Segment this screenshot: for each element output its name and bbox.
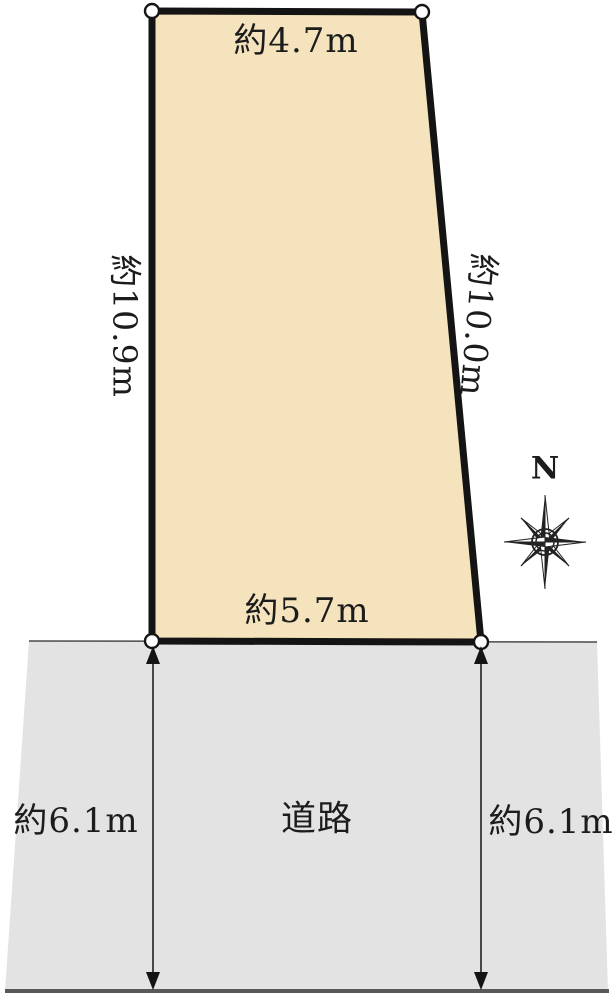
corner-marker-bottom-left	[145, 634, 159, 648]
corner-marker-top-right	[415, 5, 429, 19]
plot-bottom-dimension-label: 約5.7m	[244, 594, 369, 628]
compass-north-label: N	[531, 454, 559, 485]
land-plot-diagram: 約4.7m 約5.7m 約10.9m 約10.0m 約6.1m 道路 約6.1m…	[0, 0, 612, 1000]
corner-marker-top-left	[145, 4, 159, 18]
plot-polygon	[152, 11, 481, 642]
plot-left-dimension-label: 約10.9m	[109, 254, 142, 398]
plan-shapes-layer	[0, 0, 612, 1000]
compass-rose-icon	[504, 495, 586, 589]
road-left-width-label: 約6.1m	[13, 804, 138, 838]
plot-top-dimension-label: 約4.7m	[233, 24, 358, 58]
road-label: 道路	[281, 803, 353, 838]
road-right-width-label: 約6.1m	[488, 805, 612, 839]
plot-area	[145, 4, 488, 649]
